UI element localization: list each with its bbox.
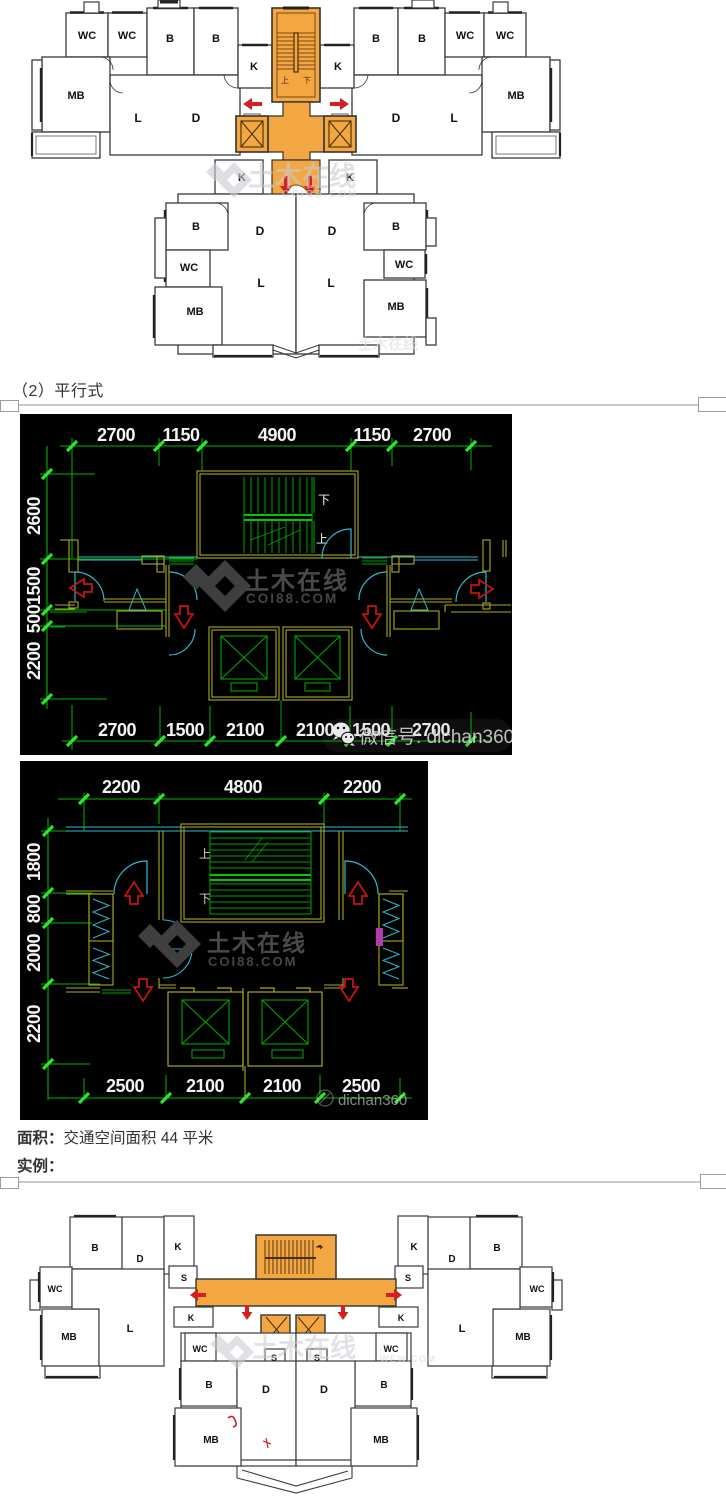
svg-text:1500: 1500: [166, 720, 205, 740]
svg-text:B: B: [380, 1380, 387, 1391]
svg-text:4900: 4900: [258, 425, 297, 445]
svg-text:B: B: [372, 33, 380, 45]
svg-text:B: B: [212, 33, 220, 45]
svg-text:下: 下: [303, 76, 311, 85]
svg-text:L: L: [134, 111, 141, 125]
svg-text:WC: WC: [118, 30, 136, 42]
svg-text:WC: WC: [530, 1284, 545, 1294]
svg-text:微信号: dichan360: 微信号: dichan360: [359, 726, 512, 748]
svg-text:COIBB.COM: COIBB.COM: [282, 189, 358, 200]
svg-text:B: B: [205, 1380, 212, 1391]
svg-text:上: 上: [281, 76, 289, 85]
svg-text:K: K: [188, 1313, 195, 1323]
svg-text:2100: 2100: [263, 1076, 302, 1096]
svg-text:D: D: [448, 1254, 455, 1265]
svg-text:下: 下: [318, 493, 330, 507]
svg-text:D: D: [328, 224, 337, 238]
svg-text:1500: 1500: [24, 566, 44, 605]
svg-text:K: K: [250, 61, 258, 73]
svg-text:800: 800: [24, 894, 44, 923]
svg-text:D: D: [192, 111, 201, 125]
svg-text:2200: 2200: [24, 1004, 44, 1043]
svg-text:K: K: [410, 1242, 418, 1253]
svg-text:WC: WC: [496, 30, 514, 42]
svg-text:L: L: [459, 1323, 466, 1335]
svg-text:下: 下: [199, 892, 211, 906]
svg-text:dichan360: dichan360: [338, 1092, 407, 1109]
svg-text:2200: 2200: [102, 777, 141, 797]
svg-text:D: D: [262, 1384, 270, 1396]
svg-text:2700: 2700: [413, 425, 452, 445]
svg-text:MB: MB: [515, 1332, 531, 1343]
svg-text:MB: MB: [186, 306, 203, 318]
svg-text:4800: 4800: [224, 777, 263, 797]
svg-text:B: B: [493, 1243, 500, 1254]
svg-text:K: K: [174, 1242, 182, 1253]
svg-text:COI88.COM: COI88.COM: [246, 591, 338, 606]
svg-text:1150: 1150: [162, 425, 200, 445]
svg-text:WEW.COM: WEW.COM: [380, 1354, 437, 1364]
svg-text:WC: WC: [395, 259, 413, 271]
svg-text:土木在线: 土木在线: [358, 335, 418, 353]
svg-text:B: B: [418, 33, 426, 45]
svg-text:2600: 2600: [24, 496, 44, 535]
svg-text:D: D: [136, 1254, 143, 1265]
svg-text:S: S: [181, 1273, 187, 1283]
svg-text:WC: WC: [78, 30, 96, 42]
svg-text:WC: WC: [48, 1284, 63, 1294]
svg-text:1150: 1150: [353, 425, 391, 445]
svg-text:MB: MB: [387, 301, 404, 313]
svg-text:MB: MB: [61, 1332, 77, 1343]
svg-text:L: L: [450, 111, 457, 125]
svg-text:B: B: [192, 221, 200, 233]
svg-text:MB: MB: [373, 1435, 389, 1446]
svg-text:土木在线: 土木在线: [248, 162, 356, 192]
svg-text:MB: MB: [203, 1435, 219, 1446]
svg-text:土木在线: 土木在线: [252, 1333, 356, 1363]
svg-text:土木在线: 土木在线: [207, 930, 307, 956]
svg-text:MB: MB: [507, 90, 524, 102]
svg-text:WC: WC: [456, 30, 474, 42]
svg-text:2100: 2100: [186, 1076, 225, 1096]
svg-text:上: 上: [199, 847, 211, 861]
svg-text:2200: 2200: [24, 641, 44, 680]
svg-text:2500: 2500: [106, 1076, 145, 1096]
svg-text:2000: 2000: [24, 933, 44, 972]
svg-text:L: L: [127, 1323, 134, 1335]
svg-text:B: B: [91, 1243, 98, 1254]
svg-text:WC: WC: [384, 1344, 399, 1354]
svg-text:2200: 2200: [343, 777, 382, 797]
svg-text:2100: 2100: [226, 720, 265, 740]
svg-text:B: B: [166, 33, 174, 45]
svg-text:WC: WC: [180, 262, 198, 274]
svg-text:D: D: [392, 111, 401, 125]
svg-text:L: L: [257, 276, 264, 290]
svg-text:500: 500: [24, 604, 44, 633]
svg-text:S: S: [405, 1273, 411, 1283]
svg-text:COI88.COM: COI88.COM: [208, 954, 298, 969]
svg-text:K: K: [334, 61, 342, 73]
svg-text:MB: MB: [67, 90, 84, 102]
svg-text:2700: 2700: [98, 720, 137, 740]
svg-text:B: B: [392, 221, 400, 233]
svg-text:D: D: [320, 1384, 328, 1396]
svg-text:K: K: [398, 1313, 405, 1323]
svg-text:1800: 1800: [24, 842, 44, 881]
svg-text:2700: 2700: [97, 425, 136, 445]
svg-text:D: D: [256, 224, 265, 238]
svg-text:L: L: [327, 276, 334, 290]
svg-text:WC: WC: [193, 1344, 208, 1354]
